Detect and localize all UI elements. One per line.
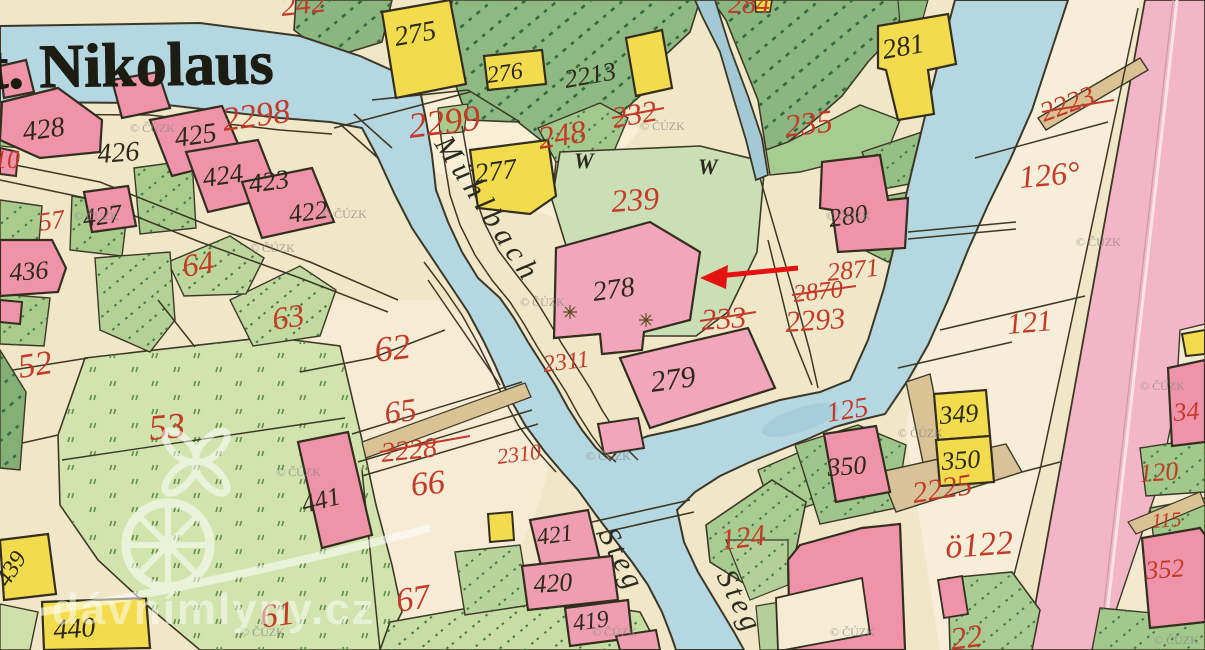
- svg-text:© ČÚZK: © ČÚZK: [322, 207, 367, 221]
- svg-text:65: 65: [382, 391, 419, 431]
- svg-text:© ČÚZK: © ČÚZK: [586, 449, 631, 463]
- svg-text:© ČÚZK: © ČÚZK: [826, 209, 871, 223]
- svg-text:62: 62: [372, 326, 413, 370]
- svg-text:350: 350: [939, 444, 981, 476]
- svg-text:© ČÚZK: © ČÚZK: [520, 295, 565, 309]
- svg-text:126°: 126°: [1017, 154, 1081, 195]
- svg-text:124: 124: [719, 519, 768, 557]
- svg-text:22: 22: [948, 617, 985, 650]
- svg-text:284: 284: [728, 0, 770, 20]
- svg-text:2293: 2293: [784, 302, 846, 339]
- svg-text:426: 426: [96, 136, 140, 170]
- svg-text:125: 125: [824, 392, 870, 429]
- svg-text:423: 423: [247, 164, 291, 199]
- svg-text:428: 428: [21, 111, 67, 148]
- svg-text:10: 10: [0, 145, 20, 174]
- svg-text:279: 279: [648, 360, 697, 399]
- svg-text:© ČÚZK: © ČÚZK: [1140, 379, 1185, 393]
- svg-text:W: W: [698, 154, 719, 179]
- svg-text:277: 277: [473, 153, 520, 190]
- svg-text:66: 66: [409, 464, 447, 504]
- svg-text:64: 64: [179, 243, 216, 284]
- svg-text:W: W: [574, 148, 595, 173]
- svg-text:424: 424: [201, 158, 245, 193]
- svg-text:© ČÚZK: © ČÚZK: [1154, 633, 1199, 647]
- svg-text:349: 349: [937, 398, 979, 430]
- svg-text:© ČÚZK: © ČÚZK: [640, 119, 685, 133]
- svg-text:278: 278: [591, 271, 637, 308]
- svg-text:© ČÚZK: © ČÚZK: [898, 426, 943, 440]
- svg-text:121: 121: [1006, 304, 1054, 341]
- svg-text:t. Nikolaus: t. Nikolaus: [0, 29, 274, 102]
- svg-text:63: 63: [269, 296, 306, 337]
- svg-text:436: 436: [8, 255, 49, 287]
- svg-text:352: 352: [1143, 553, 1185, 585]
- svg-text:© ČÚZK: © ČÚZK: [830, 625, 875, 639]
- svg-text:235: 235: [782, 102, 834, 144]
- svg-text:© ČÚZK: © ČÚZK: [130, 121, 175, 135]
- svg-text:421: 421: [535, 520, 574, 551]
- svg-text:425: 425: [173, 117, 219, 154]
- svg-text:© ČÚZK: © ČÚZK: [74, 209, 119, 223]
- svg-text:115: 115: [1151, 507, 1183, 533]
- svg-text:350: 350: [825, 450, 867, 482]
- svg-text:239: 239: [610, 180, 660, 219]
- svg-text:52: 52: [15, 344, 54, 386]
- svg-text:dávnímlyny.cz: dávnímlyny.cz: [52, 585, 376, 634]
- svg-text:© ČÚZK: © ČÚZK: [1076, 235, 1121, 249]
- svg-text:120: 120: [1138, 456, 1179, 488]
- svg-text:34: 34: [1171, 396, 1200, 427]
- svg-text:© ČÚZK: © ČÚZK: [276, 465, 321, 479]
- svg-text:420: 420: [532, 567, 573, 599]
- svg-text:276: 276: [485, 58, 524, 89]
- svg-text:2310: 2310: [496, 439, 543, 469]
- svg-text:© ČÚZK: © ČÚZK: [592, 625, 637, 639]
- svg-text:© ČÚZK: © ČÚZK: [250, 241, 295, 255]
- svg-text:ö122: ö122: [944, 524, 1014, 566]
